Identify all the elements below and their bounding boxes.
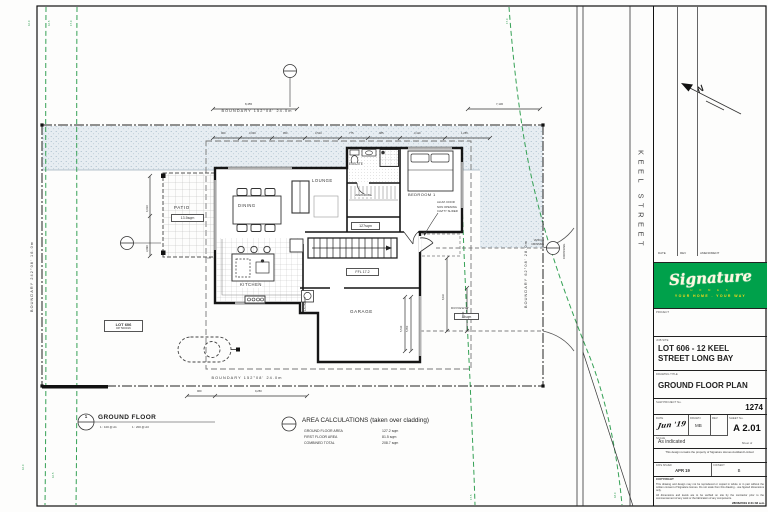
patio-area-tag: 13.5sqm [171,214,204,222]
sheet-no-value: A 2.01 [727,424,767,435]
issued-value: APR 19 [654,469,711,474]
dim-label: 5,510 [401,326,404,332]
contour-label: 16.0 [22,465,25,470]
room-label-lounge: LOUNGE [312,179,333,184]
area-calc-row-label: COMBINED TOTAL [304,441,335,445]
drawn-cell: DRAWN MB [688,415,711,436]
ffl-tag: FFL 17.2 [346,268,379,276]
copyright-title: COPYRIGHT [656,478,674,481]
room-label-garage: GARAGE [350,309,373,314]
view-scale-a3: 1 : 200 @ A3 [132,426,149,429]
dp-number: DP 500016 [107,327,141,331]
area-calc-row-value: 127.2 sqm [382,429,398,433]
drawing-title-value: GROUND FLOOR PLAN [658,381,748,390]
drawn-value: MB [695,423,702,428]
project-label: PROJECT [656,310,669,314]
area-calc-row-label: FIRST FLOOR AREA [304,435,337,439]
copyright-paragraph-1: This drawing and design may not be repro… [656,483,764,493]
crossing-side-label2: CROSSING [524,244,544,247]
dim-label: 960 [197,390,201,393]
room-label-wardrobe: WARDROBE [355,194,372,197]
sheet-no-label: SHEET No. [729,416,743,420]
scale-value: As indicated [658,440,685,446]
drawing-title-box: DRAWING TITLE GROUND FLOOR PLAN [654,370,767,398]
view-number: 1 [82,414,90,419]
toilet-cistern [350,150,359,155]
rev-table-column [677,6,678,256]
print-stamp: 28/06/2019 9:41:32 a.m. [732,502,765,505]
contour-label: 17.5 [470,495,473,500]
logo-tagline: YOUR HOME . YOUR WAY [654,294,767,298]
contour-label: 16.5 [52,473,55,478]
view-scale-a1: 1 : 100 @ A1 [100,426,117,429]
dim-label: 985 [379,132,383,135]
project-no-box: SHW PROJECT No. 1274 [654,398,767,414]
dim-label: 9,250 [255,390,262,393]
room-label-ensuite: ENSUITE [349,163,363,167]
soak-pit [178,337,240,362]
boundary-bottom-label: BOUNDARY 152°08' 24.0m [188,376,306,380]
boundary-right-label: BOUNDARY 62°08' 28.0m [524,240,528,308]
area-calc-title: AREA CALCULATIONS (taken over cladding) [302,417,429,424]
date-value: Jun '19 [657,420,687,430]
dim-label: 5,950 [407,326,410,332]
logo-script-text: Signature [654,266,768,290]
title-block: DATE REV AMENDMENT Signature H O M E S Y… [653,6,767,506]
dim-label: 3,990 [146,245,149,252]
boundary-left-label: BOUNDARY 242°08' 16.0m [30,241,34,312]
dim-label: 4,910 [463,312,466,318]
drawn-label: DRAWN [690,416,700,420]
issued-label: DATE ISSUED [656,464,672,467]
area-calc-row-label: GROUND FLOOR AREA [304,429,343,433]
sheet-of: Sheet of [727,442,767,445]
issued-cell: DATE ISSUED APR 19 [654,463,712,477]
boundary-top-label: BOUNDARY 152°08' 24.0m [198,109,316,113]
garage-door [419,296,422,356]
sheet-no-cell: SHEET No. A 2.01 Sheet of [727,415,767,449]
scale-cell: SCALE As indicated [654,435,727,449]
project-no-value: 1274 [745,403,763,412]
consent-label: CONSENT [713,464,725,467]
dim-label: 7,130 [496,103,503,106]
ownership-note-box: This design remains the property of Sign… [654,448,767,462]
site-plan-sheet: BOUNDARY 152°08' 24.0m BOUNDARY 152°08' … [0,0,768,512]
retaining-wall [42,385,108,389]
door-note-line1: ALUM. DOOR [437,201,455,204]
contour-label: 18.0 [614,493,617,498]
room-label-kitchen: KITCHEN [240,283,262,288]
door-note-line3: CAVITY SLIDER [437,210,458,213]
consent-value: B [711,469,767,474]
crossing-vertical-label: CROSSING [563,244,566,259]
copyright-paragraph-2: All dimensions and levels are to be veri… [656,494,764,500]
job-site-value: LOT 606 - 12 KEEL STREET LONG BAY [658,344,760,363]
project-box: PROJECT [654,308,767,336]
dim-label: 8,110 [443,294,446,300]
contour-label: 16.0 [28,21,31,26]
rev-header-date: DATE [658,252,666,255]
tall-cabinet [292,181,309,213]
job-site-box: JOB SITE LOT 606 - 12 KEEL STREET LONG B… [654,336,767,370]
signature-homes-logo: Signature H O M E S YOUR HOME . YOUR WAY [654,262,767,308]
dim-label: 1,255 [461,132,468,135]
drawing-title-label: DRAWING TITLE [656,372,678,376]
floor-area-tag: 127sqm [351,222,380,230]
view-title: GROUND FLOOR [98,414,156,421]
consent-cell: CONSENT B [711,463,767,477]
rev-label: REV [712,416,718,420]
room-label-dining: DINING [238,204,256,209]
rev-table-column [697,6,698,256]
copyright-box: COPYRIGHT This drawing and design may no… [654,476,767,506]
rev-header-rev: REV [680,252,686,255]
room-label-laundry: LAUNDRY [304,297,307,311]
dim-label: 4,010 [146,205,149,212]
street-name-label: KEEL STREET [636,150,645,250]
lot-tag: LOT 606 DP 500016 [104,320,143,332]
area-calc-row-value: 81.5 sqm [382,435,396,439]
date-label: DATE [656,416,663,420]
dim-label: 3,000 [249,132,256,135]
contour-label: 16.5 [48,21,51,26]
ownership-note: This design remains the property of Sign… [657,451,762,455]
job-site-label: JOB SITE [656,338,668,342]
rev-cell: REV [710,415,728,436]
entry-door [419,236,433,252]
room-label-patio: PATIO [174,205,190,210]
dim-label: 775 [349,132,353,135]
sink [256,262,269,273]
dining-table [233,196,281,224]
area-calc-row-value: 208.7 sqm [382,441,398,445]
dim-label: 8,455 [245,103,252,106]
dim-label: 3,110 [414,132,421,135]
rev-header-amendment: AMENDMENT [700,252,719,255]
room-label-bedroom1: BEDROOM 1 [408,193,436,198]
dim-label: 900 [221,132,225,135]
dim-label: 950 [283,132,287,135]
date-cell: DATE Jun '19 [654,415,689,436]
issue-row: DATE Jun '19 DRAWN MB REV SHEET No. A 2.… [654,414,767,448]
project-no-label: SHW PROJECT No. [656,400,681,404]
street-lines [577,6,633,506]
driveway-area-tag: 44sqm [454,313,479,320]
fridge [290,239,303,252]
approval-row: DATE ISSUED APR 19 CONSENT B [654,462,767,476]
contour-label: 17.0 [70,21,73,26]
contour-label: 17.0 [506,19,509,24]
dim-label: 3,510 [315,132,322,135]
room-label-driveway: DRIVEWAY [451,307,469,310]
